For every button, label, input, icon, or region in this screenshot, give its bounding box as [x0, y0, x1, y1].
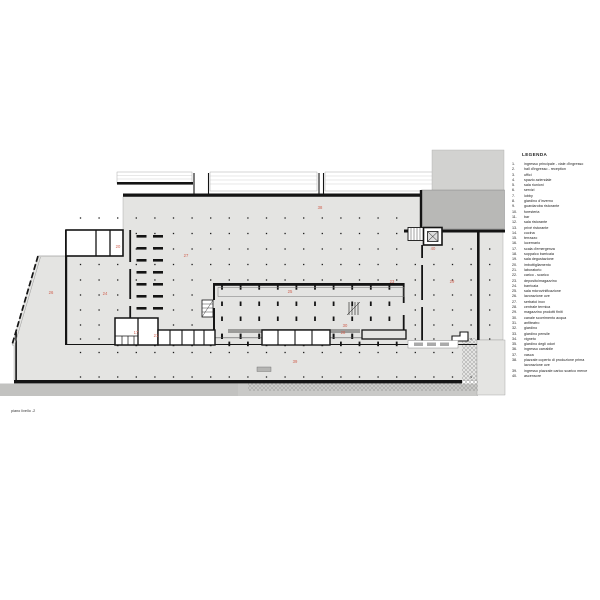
hall-column: [296, 302, 298, 307]
column-dot: [247, 233, 248, 234]
room-number: 24: [103, 291, 108, 296]
column-dot: [452, 376, 453, 377]
column-dot: [229, 352, 230, 353]
east-inner-wall: [477, 231, 480, 340]
column-dot: [98, 217, 99, 218]
ne-step-wall-v: [420, 190, 422, 232]
legend-item-number: 38.: [511, 358, 521, 369]
tank-bar: [137, 259, 147, 262]
column-dot: [247, 264, 248, 265]
tank-bar: [153, 295, 163, 298]
hall-column: [258, 302, 260, 307]
column-dot: [489, 338, 490, 339]
column-dot: [173, 309, 174, 310]
column-dot: [98, 324, 99, 325]
column-dot: [303, 264, 304, 265]
column-dot: [80, 264, 81, 265]
hall-column: [370, 302, 372, 307]
hall-south-column: [221, 334, 223, 339]
column-dot: [191, 233, 192, 234]
tank-bar: [153, 235, 163, 238]
column-dot: [266, 279, 267, 280]
room-number: 23: [390, 279, 395, 284]
column-dot: [359, 217, 360, 218]
room-number: 27: [184, 253, 189, 258]
column-dot: [284, 233, 285, 234]
hall-column: [221, 302, 223, 307]
hall-column: [333, 302, 335, 307]
column-dot: [359, 279, 360, 280]
column-dot: [303, 233, 304, 234]
column-dot: [322, 233, 323, 234]
column-dot: [415, 294, 416, 295]
hall-column: [351, 317, 353, 322]
column-dot: [247, 376, 248, 377]
legend: LEGENDA 1.ingresso principale - viale d'…: [511, 152, 600, 379]
column-dot: [359, 352, 360, 353]
column-dot: [80, 217, 81, 218]
hall-column: [333, 317, 335, 322]
room-number: 26: [49, 290, 54, 295]
column-dot: [154, 352, 155, 353]
column-dot: [377, 279, 378, 280]
column-dot: [173, 217, 174, 218]
column-dot: [229, 248, 230, 249]
column-dot: [359, 376, 360, 377]
hall-column: [370, 317, 372, 322]
room-number: 28: [341, 330, 346, 335]
hall-column: [389, 317, 391, 322]
column-dot: [173, 279, 174, 280]
column-dot: [191, 352, 192, 353]
retaining-hatch-east: [462, 338, 477, 391]
hall-south-column: [333, 334, 335, 339]
column-dot: [210, 217, 211, 218]
column-dot: [470, 279, 471, 280]
column-dot: [396, 264, 397, 265]
room-block-c: [262, 330, 330, 345]
column-dot: [210, 248, 211, 249]
column-dot: [117, 376, 118, 377]
column-dot: [470, 309, 471, 310]
column-dot: [303, 352, 304, 353]
column-dot: [266, 376, 267, 377]
column-dot: [136, 376, 137, 377]
column-dot: [247, 279, 248, 280]
column-dot: [415, 338, 416, 339]
legend-item: 38.piazzale coperto di produzione prima …: [511, 358, 600, 369]
hall-column: [277, 302, 279, 307]
legend-title: LEGENDA: [511, 152, 600, 157]
column-dot: [80, 294, 81, 295]
column-dot: [415, 264, 416, 265]
column-dot: [154, 264, 155, 265]
column-dot: [377, 376, 378, 377]
hall-top-wall: [213, 283, 404, 286]
column-dot: [433, 264, 434, 265]
column-dot: [98, 264, 99, 265]
column-dot: [340, 264, 341, 265]
column-dot: [489, 264, 490, 265]
column-dot: [359, 248, 360, 249]
column-dot: [470, 294, 471, 295]
column-dot: [98, 309, 99, 310]
column-dot: [154, 279, 155, 280]
column-dot: [266, 233, 267, 234]
hall-column: [314, 317, 316, 322]
column-dot: [136, 217, 137, 218]
tank-bar: [153, 283, 163, 286]
column-dot: [98, 294, 99, 295]
column-dot: [322, 352, 323, 353]
column-dot: [98, 376, 99, 377]
column-dot: [452, 309, 453, 310]
legend-items: 1.ingresso principale - viale d'ingresso…: [511, 162, 600, 379]
column-dot: [229, 279, 230, 280]
column-dot: [284, 352, 285, 353]
column-dot: [452, 324, 453, 325]
column-dot: [154, 376, 155, 377]
column-dot: [433, 338, 434, 339]
tank-bar: [137, 307, 147, 310]
column-dot: [173, 264, 174, 265]
column-dot: [284, 264, 285, 265]
access-ramp-block: [432, 150, 504, 191]
column-dot: [303, 217, 304, 218]
column-dot: [136, 233, 137, 234]
column-dot: [284, 279, 285, 280]
hall-column: [296, 317, 298, 322]
column-dot: [80, 376, 81, 377]
column-dot: [191, 309, 192, 310]
column-dot: [210, 233, 211, 234]
column-dot: [303, 376, 304, 377]
column-dot: [117, 309, 118, 310]
room-number: 25: [288, 289, 293, 294]
south-column: [228, 342, 230, 347]
south-column: [340, 342, 342, 347]
column-dot: [396, 217, 397, 218]
column-dot: [117, 279, 118, 280]
column-dot: [396, 376, 397, 377]
column-dot: [452, 352, 453, 353]
column-dot: [452, 248, 453, 249]
room-number: 38: [318, 205, 323, 210]
room-number: 30: [343, 323, 348, 328]
column-dot: [340, 352, 341, 353]
legend-item-label: ascensore: [521, 374, 600, 379]
column-dot: [340, 279, 341, 280]
hall-column: [221, 317, 223, 322]
room-number: 40: [431, 246, 436, 251]
column-dot: [396, 248, 397, 249]
legend-item-number: 40.: [511, 374, 521, 379]
column-dot: [191, 376, 192, 377]
column-dot: [191, 264, 192, 265]
column-dot: [377, 264, 378, 265]
column-dot: [247, 352, 248, 353]
column-dot: [415, 309, 416, 310]
column-dot: [173, 324, 174, 325]
column-dot: [303, 248, 304, 249]
column-dot: [173, 376, 174, 377]
column-dot: [452, 264, 453, 265]
column-dot: [210, 264, 211, 265]
column-dot: [154, 217, 155, 218]
column-dot: [229, 264, 230, 265]
hall-column: [258, 317, 260, 322]
column-dot: [340, 248, 341, 249]
tank-bar: [153, 259, 163, 262]
hall-south-column: [240, 334, 242, 339]
column-dot: [98, 352, 99, 353]
column-dot: [173, 233, 174, 234]
column-dot: [98, 279, 99, 280]
legend-item: 40.ascensore: [511, 374, 600, 379]
column-dot: [489, 294, 490, 295]
column-dot: [322, 217, 323, 218]
stair-west: [202, 300, 213, 317]
column-dot: [470, 248, 471, 249]
column-dot: [229, 233, 230, 234]
column-dot: [173, 352, 174, 353]
column-dot: [80, 324, 81, 325]
column-dot: [173, 294, 174, 295]
column-dot: [266, 352, 267, 353]
column-dot: [415, 376, 416, 377]
column-dot: [98, 338, 99, 339]
column-dot: [433, 309, 434, 310]
column-dot: [80, 309, 81, 310]
tank-bar: [153, 307, 163, 310]
column-dot: [173, 248, 174, 249]
room-number: 21: [154, 333, 159, 338]
south-column: [359, 342, 361, 347]
south-column: [396, 342, 398, 347]
southwest-wall: [15, 332, 17, 381]
column-dot: [210, 352, 211, 353]
column-dot: [377, 217, 378, 218]
corridor-wall: [129, 230, 131, 322]
tank-bar: [137, 247, 147, 250]
legend-item-label: piazzale coperto di produzione prima lav…: [521, 358, 600, 369]
column-dot: [191, 294, 192, 295]
upper-terrain-block: [422, 190, 505, 229]
column-dot: [489, 279, 490, 280]
column-dot: [117, 352, 118, 353]
column-dot: [191, 279, 192, 280]
nw-rooms: [66, 230, 123, 256]
column-dot: [470, 324, 471, 325]
room-block-d: [362, 330, 406, 339]
tank-bar: [153, 247, 163, 250]
column-dot: [359, 264, 360, 265]
column-dot: [452, 294, 453, 295]
stair-ne: [408, 228, 424, 241]
column-dot: [191, 248, 192, 249]
south-wall: [14, 380, 462, 383]
hall-column: [240, 317, 242, 322]
column-dot: [433, 279, 434, 280]
column-dot: [377, 352, 378, 353]
column-dot: [117, 264, 118, 265]
column-dot: [489, 324, 490, 325]
column-dot: [229, 376, 230, 377]
room-number: 17: [134, 330, 139, 335]
south-column: [377, 342, 379, 347]
column-dot: [415, 352, 416, 353]
column-dot: [433, 352, 434, 353]
column-dot: [415, 279, 416, 280]
south-column: [247, 342, 249, 347]
room-block-b: [158, 330, 215, 345]
column-dot: [322, 279, 323, 280]
column-dot: [322, 376, 323, 377]
column-dot: [80, 338, 81, 339]
column-dot: [322, 264, 323, 265]
column-dot: [340, 217, 341, 218]
hall-column: [314, 302, 316, 307]
room-number: 29: [450, 279, 455, 284]
column-dot: [489, 309, 490, 310]
tank-bar: [137, 235, 147, 238]
column-dot: [303, 279, 304, 280]
column-dot: [117, 294, 118, 295]
column-dot: [470, 264, 471, 265]
column-dot: [433, 324, 434, 325]
drawing-caption: piano livello -2: [11, 409, 35, 413]
column-dot: [489, 248, 490, 249]
loading-dock: [408, 341, 458, 349]
column-dot: [117, 217, 118, 218]
column-dot: [322, 248, 323, 249]
column-dot: [191, 217, 192, 218]
column-dot: [396, 352, 397, 353]
tank-bar: [137, 283, 147, 286]
architectural-drawing: 3820272426253040232917212839 LEGENDA 1.i…: [0, 0, 600, 600]
elevator: [424, 228, 443, 246]
column-dot: [136, 264, 137, 265]
column-dot: [340, 376, 341, 377]
column-dot: [377, 233, 378, 234]
service-road-left: [0, 384, 238, 397]
floor-plan: 3820272426253040232917212839: [0, 0, 600, 600]
hall-column: [277, 317, 279, 322]
tank-bar: [137, 295, 147, 298]
room-number: 20: [116, 244, 121, 249]
column-dot: [80, 352, 81, 353]
room-number: 39: [293, 359, 298, 364]
column-dot: [266, 264, 267, 265]
column-dot: [154, 233, 155, 234]
column-dot: [210, 376, 211, 377]
column-dot: [247, 248, 248, 249]
scale-marker: [257, 367, 271, 372]
hall-column: [389, 302, 391, 307]
east-apron: [477, 340, 505, 395]
column-dot: [210, 279, 211, 280]
column-dot: [266, 248, 267, 249]
hall-south-column: [258, 334, 260, 339]
column-dot: [415, 324, 416, 325]
column-dot: [284, 217, 285, 218]
column-dot: [396, 279, 397, 280]
column-dot: [340, 233, 341, 234]
tank-bar: [137, 271, 147, 274]
column-dot: [433, 294, 434, 295]
column-dot: [359, 233, 360, 234]
column-dot: [396, 233, 397, 234]
column-dot: [284, 248, 285, 249]
hall-column: [240, 302, 242, 307]
column-dot: [284, 376, 285, 377]
column-dot: [266, 217, 267, 218]
column-dot: [136, 279, 137, 280]
column-dot: [191, 324, 192, 325]
column-dot: [136, 352, 137, 353]
column-dot: [229, 217, 230, 218]
column-dot: [433, 376, 434, 377]
column-dot: [80, 279, 81, 280]
tank-bar: [153, 271, 163, 274]
hall-south-column: [351, 334, 353, 339]
column-dot: [247, 217, 248, 218]
column-dot: [377, 248, 378, 249]
